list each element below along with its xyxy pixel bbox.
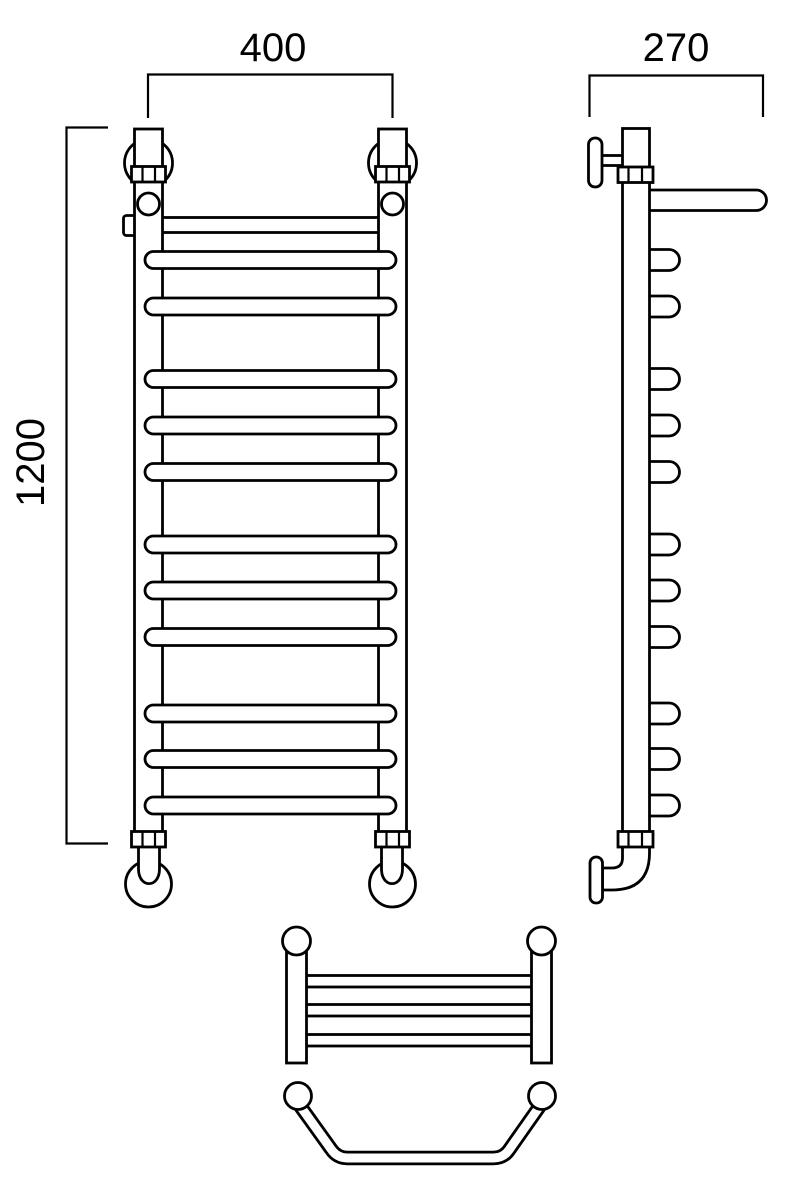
towel-rung [145, 582, 396, 599]
post-section-circle [285, 1083, 312, 1110]
front-view [124, 129, 417, 907]
technical-drawing-page: 400 270 1200 [0, 0, 793, 1200]
towel-rung [145, 751, 396, 768]
towel-rung [145, 298, 396, 315]
side-post [623, 129, 650, 833]
side-view [589, 129, 767, 904]
shelf-arm-side [638, 190, 767, 211]
shelf-bar-top [296, 1035, 542, 1047]
side-bottom-union-nut [618, 832, 653, 848]
shelf-arm-left [287, 947, 307, 1063]
towel-rung [145, 797, 396, 814]
towel-rung [145, 536, 396, 553]
top-view-shelf [283, 927, 556, 1063]
towel-rail-drawing: 400 270 1200 [0, 0, 793, 1200]
dimension-height: 1200 [9, 128, 108, 844]
height-dimension-label: 1200 [9, 418, 53, 507]
towel-rung [145, 252, 396, 269]
towel-rung [145, 705, 396, 722]
dimension-width: 400 [148, 26, 393, 118]
towel-rung [145, 417, 396, 434]
top-wall-bracket [589, 138, 603, 187]
top-view-curved-rail [285, 1083, 556, 1159]
bottom-left-pipe [139, 843, 160, 884]
height-extension-lines [67, 128, 109, 844]
depth-dimension-label: 270 [643, 26, 710, 70]
left-air-vent-circle [138, 193, 160, 215]
towel-rung [145, 464, 396, 481]
curved-rung-band-fill [298, 1103, 542, 1158]
top-right-union-nut [376, 167, 410, 183]
width-extension-lines [148, 75, 393, 119]
shelf-bar-top [296, 1005, 542, 1017]
post-section-circle [528, 927, 556, 955]
bottom-right-pipe [382, 843, 403, 884]
mounting-rod [600, 156, 624, 166]
post-section-circle [529, 1083, 556, 1110]
shelf-bar-front [139, 218, 392, 233]
right-air-vent-circle [382, 193, 404, 215]
side-top-union-nut [618, 167, 653, 183]
bottom-wall-flange [590, 857, 603, 903]
width-dimension-label: 400 [240, 26, 307, 70]
post-section-circle [283, 927, 311, 955]
towel-rung [145, 629, 396, 646]
depth-extension-lines [590, 76, 764, 118]
shelf-arm-right [532, 947, 552, 1063]
towel-rung [145, 371, 396, 388]
bottom-right-union-nut [376, 832, 410, 848]
bottom-left-union-nut [132, 832, 166, 848]
shelf-bar-top [296, 976, 542, 988]
front-rungs [145, 252, 396, 815]
dimension-depth: 270 [590, 26, 764, 117]
top-left-union-nut [132, 167, 166, 183]
